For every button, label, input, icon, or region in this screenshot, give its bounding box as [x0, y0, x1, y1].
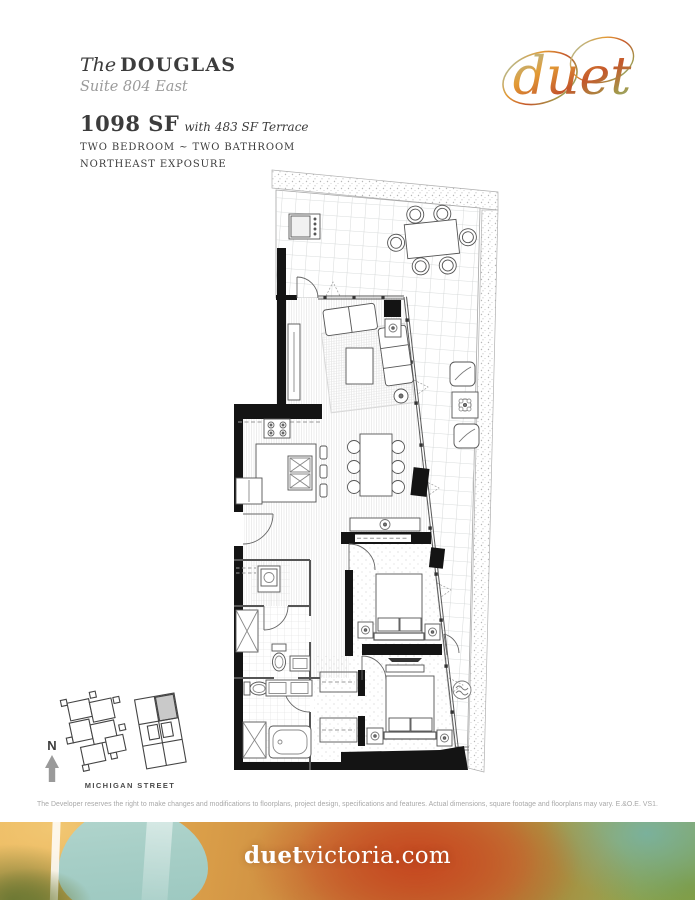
- keyplan: N: [35, 683, 195, 785]
- header: TheDOUGLAS Suite 804 East 1098 SFwith 48…: [80, 54, 309, 170]
- terrace-planter-pot: [453, 681, 471, 699]
- building-prefix: The: [80, 54, 116, 76]
- disclaimer-text: The Developer reserves the right to make…: [0, 801, 695, 808]
- street-label: MICHIGAN STREET: [55, 781, 205, 790]
- url-rest-part: victoria.com: [303, 843, 451, 869]
- bar-stool: [320, 446, 327, 459]
- floorplan: [228, 166, 508, 778]
- pillow: [400, 618, 421, 631]
- cooktop: [264, 419, 290, 438]
- duet-logo: duet: [486, 26, 658, 122]
- bbq-grill-icon: [289, 214, 320, 239]
- toilet-tank: [244, 682, 250, 695]
- tv-shelf: [386, 665, 424, 672]
- site-building-outline: [58, 687, 132, 774]
- bar-stool: [320, 465, 327, 478]
- bed-bath-line: TWO BEDROOM ~ TWO BATHROOM: [80, 142, 309, 153]
- headboard: [384, 732, 436, 739]
- website-url[interactable]: duetvictoria.com: [0, 842, 695, 869]
- coffee-table: [346, 348, 373, 384]
- terrace-lounge-set: [450, 362, 479, 448]
- footer-banner: duetvictoria.com: [0, 822, 695, 900]
- pillow: [411, 718, 432, 731]
- highlighted-suite: [155, 694, 177, 721]
- building-title: TheDOUGLAS: [80, 54, 309, 76]
- pillow: [378, 618, 399, 631]
- terrace-area-note: with 483 SF Terrace: [184, 120, 308, 134]
- north-arrow: N: [45, 738, 59, 782]
- north-label: N: [47, 738, 56, 753]
- suite-area: 1098 SF: [80, 111, 179, 136]
- logo-wordmark: duet: [513, 47, 632, 107]
- wall-tv: [388, 658, 422, 662]
- bar-stool: [320, 484, 327, 497]
- flyer-page: TheDOUGLAS Suite 804 East 1098 SFwith 48…: [0, 0, 695, 900]
- suite-label: Suite 804 East: [80, 79, 309, 95]
- sink-unit: [288, 456, 312, 490]
- headboard: [374, 633, 424, 640]
- floor-keyplan: [135, 693, 187, 769]
- url-bold-part: duet: [244, 842, 303, 869]
- toilet-tank: [272, 644, 286, 651]
- dining-table: [360, 434, 392, 496]
- building-name: DOUGLAS: [120, 54, 236, 76]
- area-line: 1098 SFwith 483 SF Terrace: [80, 111, 309, 136]
- pillow: [389, 718, 410, 731]
